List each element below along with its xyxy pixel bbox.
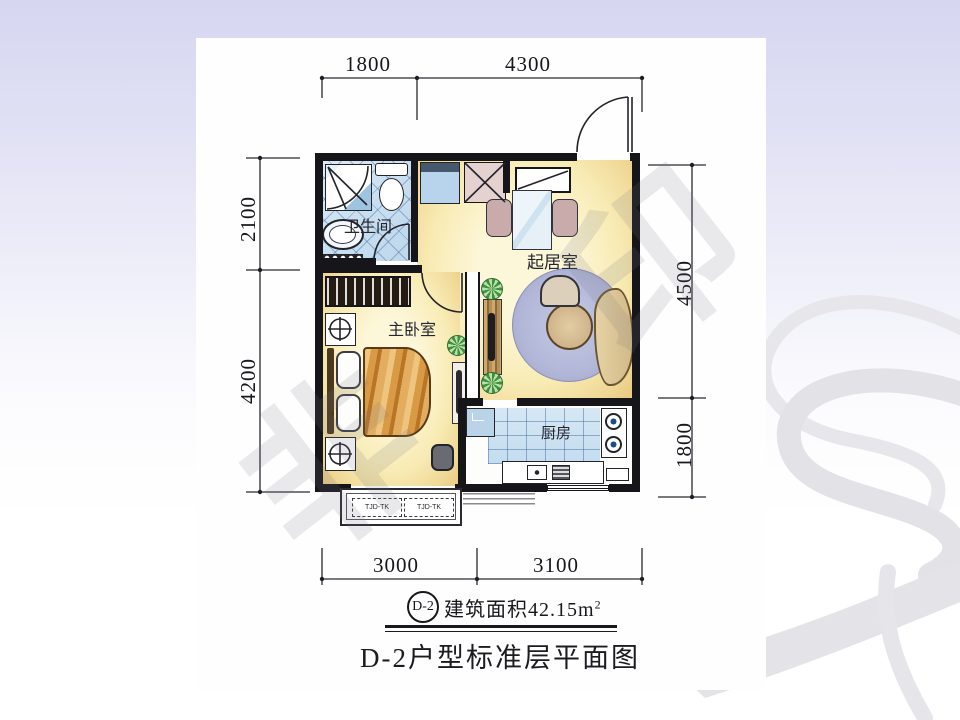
- unit-code-badge: D-2: [407, 591, 439, 623]
- plant-bottom: [481, 372, 503, 394]
- bean-sofa: [594, 288, 634, 386]
- wall-bathroom-right: [411, 161, 418, 262]
- wall-kitchen-top: [517, 398, 640, 406]
- wall-kitchen-top-stub: [458, 398, 483, 406]
- dim-right-1800: 1800: [673, 400, 695, 490]
- kitchen-sink-mark: [472, 413, 484, 421]
- toilet-bowl: [379, 178, 404, 211]
- title-rule-thick: [385, 625, 617, 628]
- dim-top-4300: 4300: [483, 53, 573, 75]
- dim-right-4500: 4500: [673, 238, 695, 328]
- counter-appliance-1: [527, 465, 547, 480]
- pillow-top: [336, 351, 361, 389]
- threshold-steps: [463, 493, 535, 507]
- counter-appliance-2: [552, 465, 570, 480]
- area-text: 建筑面积42.15m2: [444, 593, 602, 622]
- room-label-bathroom: 卫生间: [344, 213, 392, 237]
- armchair: [540, 275, 580, 307]
- dining-table: [512, 190, 552, 250]
- washing-machine: [420, 162, 460, 204]
- tv-screen: [488, 313, 495, 361]
- dim-bottom-3100: 3100: [511, 554, 601, 576]
- duct-shaft: [464, 162, 506, 203]
- wall-bathroom-bottom: [322, 258, 376, 265]
- bedroom-stool: [431, 444, 454, 471]
- wall-top: [315, 153, 577, 161]
- wall-bottom-right: [609, 484, 640, 492]
- slide-background: TJD-TK TJD-TK: [0, 0, 960, 720]
- ac-unit-label-1: TJD-TK: [352, 498, 402, 517]
- wall-left: [315, 153, 323, 492]
- area-superscript: 2: [595, 597, 602, 611]
- room-label-bedroom: 主卧室: [388, 316, 436, 340]
- burner-top: [605, 413, 622, 430]
- room-label-kitchen: 厨房: [541, 422, 571, 443]
- plant-top: [481, 278, 503, 300]
- wall-bottom-mid: [455, 484, 547, 492]
- wall-kitchen-left: [458, 398, 466, 492]
- burner-bottom: [605, 436, 622, 453]
- wall-entry-pier: [503, 153, 510, 193]
- kitchen-window-midline: [548, 488, 608, 489]
- room-label-living: 起居室: [527, 248, 578, 273]
- dim-bottom-3000: 3000: [351, 554, 441, 576]
- nightstand-top: [325, 313, 356, 346]
- title-rule-thin: [385, 631, 617, 632]
- dim-top-1800: 1800: [323, 53, 413, 75]
- wardrobe: [325, 276, 411, 307]
- nightstand-bottom: [325, 437, 356, 471]
- area-label: 建筑面积42.15m: [444, 599, 595, 621]
- plan-caption: D-2户型标准层平面图: [350, 636, 650, 675]
- bed-headboard: [327, 348, 334, 434]
- partition-tv-wall: [465, 272, 480, 402]
- dining-chair-right: [552, 199, 578, 237]
- dim-left-2100: 2100: [237, 174, 259, 264]
- wall-bedroom-top: [322, 265, 422, 273]
- pillow-bottom: [336, 394, 361, 432]
- dim-left-4200: 4200: [237, 336, 259, 426]
- coffee-table: [546, 303, 593, 350]
- kitchen-corner-box: [606, 468, 629, 481]
- bed-duvet: [363, 347, 431, 437]
- toilet-tank: [375, 163, 408, 176]
- wall-right: [632, 153, 640, 492]
- dining-chair-left: [486, 199, 512, 237]
- ac-unit-label-2: TJD-TK: [404, 498, 454, 517]
- shower-stall: [325, 164, 372, 211]
